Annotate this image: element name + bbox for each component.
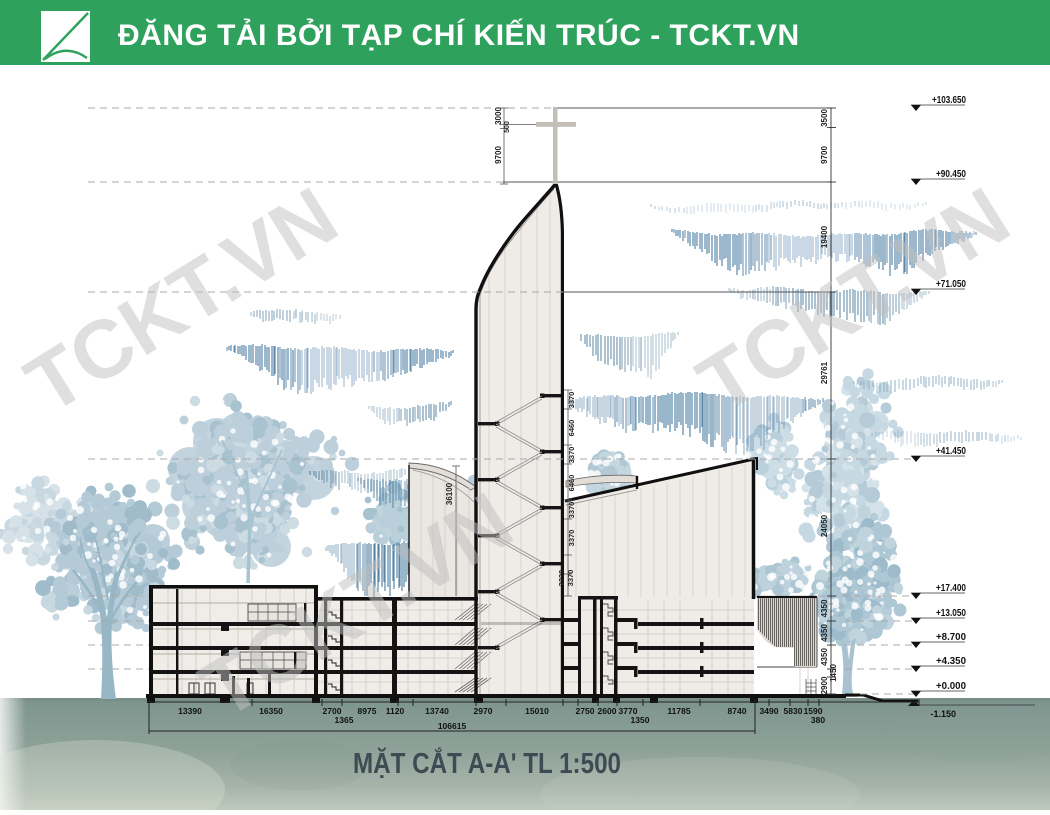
svg-text:13740: 13740 [425,706,449,716]
svg-text:106615: 106615 [438,721,467,731]
svg-text:+13.050: +13.050 [936,608,966,619]
svg-text:1365: 1365 [335,715,354,725]
svg-text:24050: 24050 [820,514,829,537]
svg-text:2900: 2900 [820,676,829,694]
svg-text:3370: 3370 [567,447,576,464]
svg-text:15010: 15010 [525,706,549,716]
svg-text:8740: 8740 [728,706,747,716]
svg-text:19400: 19400 [820,225,829,248]
svg-text:+17.400: +17.400 [936,583,966,594]
svg-text:+8.700: +8.700 [936,632,966,643]
svg-text:+103.650: +103.650 [932,95,966,106]
svg-text:8975: 8975 [358,706,377,716]
svg-text:6460: 6460 [567,420,576,437]
svg-text:+0.000: +0.000 [936,681,966,692]
svg-text:3000: 3000 [494,107,503,125]
svg-text:3370: 3370 [567,392,576,409]
svg-text:1350: 1350 [631,715,650,725]
svg-text:500: 500 [504,121,511,133]
svg-text:11785: 11785 [667,706,690,716]
svg-text:+90.450: +90.450 [936,169,966,180]
svg-text:1120: 1120 [386,706,405,716]
svg-text:2600: 2600 [598,706,617,716]
svg-text:6460: 6460 [567,475,576,492]
svg-text:380: 380 [811,715,825,725]
svg-text:4350: 4350 [820,624,829,642]
svg-text:9700: 9700 [494,146,503,164]
svg-text:3500: 3500 [820,109,829,127]
svg-text:2970: 2970 [474,706,493,716]
svg-text:ĐĂNG TẢI BỞI TẠP CHÍ KIẾN TRÚC: ĐĂNG TẢI BỞI TẠP CHÍ KIẾN TRÚC - TCKT.VN [118,18,800,52]
svg-text:13390: 13390 [178,706,202,716]
svg-text:3230: 3230 [557,570,566,587]
svg-text:4350: 4350 [820,599,829,617]
svg-text:3490: 3490 [760,706,779,716]
svg-text:1450: 1450 [829,664,838,682]
svg-text:-1.150: -1.150 [930,709,956,719]
svg-text:9700: 9700 [820,146,829,164]
svg-text:MẶT CẮT A-Aʹ TL 1:500: MẶT CẮT A-Aʹ TL 1:500 [353,746,621,780]
svg-text:3370: 3370 [567,530,576,547]
svg-text:4350: 4350 [820,648,829,666]
svg-text:2750: 2750 [576,706,595,716]
svg-text:5830: 5830 [784,706,803,716]
svg-text:3370: 3370 [567,502,576,519]
svg-text:+41.450: +41.450 [936,446,966,457]
svg-text:3370: 3370 [566,570,575,587]
svg-text:+4.350: +4.350 [936,656,966,667]
